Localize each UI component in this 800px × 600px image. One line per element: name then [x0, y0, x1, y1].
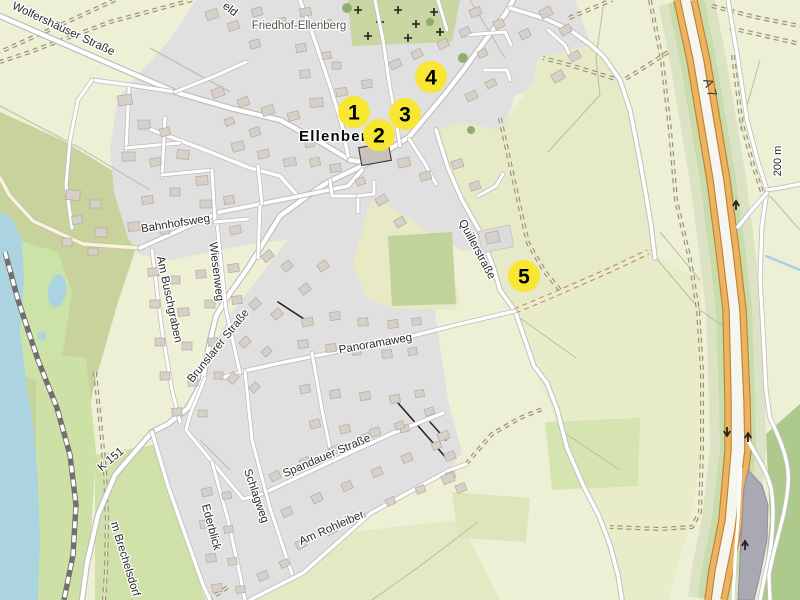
svg-text:Friedhof-Ellenberg: Friedhof-Ellenberg	[252, 20, 347, 32]
svg-text:1: 1	[348, 102, 360, 125]
svg-text:200 m: 200 m	[772, 146, 784, 177]
svg-text:5: 5	[518, 266, 530, 289]
svg-text:4: 4	[425, 67, 437, 90]
svg-text:3: 3	[399, 104, 411, 127]
svg-text:2: 2	[373, 125, 385, 148]
